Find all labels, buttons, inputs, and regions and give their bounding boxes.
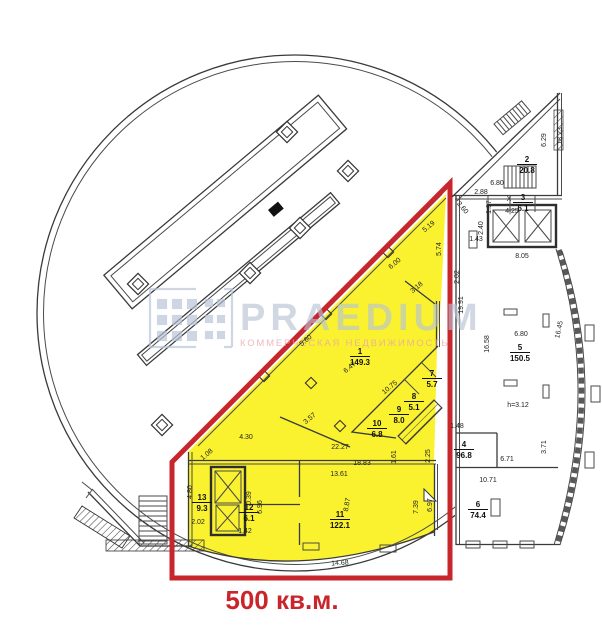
svg-text:1: 1 xyxy=(358,347,363,356)
svg-text:8: 8 xyxy=(412,392,417,401)
svg-text:20.8: 20.8 xyxy=(519,166,535,175)
svg-text:6: 6 xyxy=(476,500,481,509)
dimension-label: 18.83 xyxy=(353,460,371,467)
svg-text:2: 2 xyxy=(525,155,530,164)
dimension-label: 6.96 xyxy=(257,500,264,514)
dimension-label: 3.71 xyxy=(541,440,548,454)
dimension-label: X xyxy=(507,196,512,203)
dimension-label: 1.42 xyxy=(238,528,252,535)
dimension-label: 1.43 xyxy=(469,236,483,243)
dimension-label: 5.74 xyxy=(436,242,443,256)
svg-text:3: 3 xyxy=(521,193,526,202)
dimension-label: 6.80 xyxy=(490,180,504,187)
dimension-label: 4.80 xyxy=(187,485,194,499)
dimension-label: 2.40 xyxy=(478,221,485,235)
svg-text:74.4: 74.4 xyxy=(470,511,486,520)
svg-text:6.8: 6.8 xyxy=(371,430,383,439)
svg-text:5.1: 5.1 xyxy=(408,403,420,412)
dimension-label: 1.61 xyxy=(391,450,398,464)
dimension-label: 10.71 xyxy=(479,477,497,484)
svg-text:8.0: 8.0 xyxy=(393,416,405,425)
dimension-label: 2.02 xyxy=(454,270,461,284)
dimension-label: 16.58 xyxy=(484,335,491,353)
svg-text:96.8: 96.8 xyxy=(456,451,472,460)
dimension-label: 0.39 xyxy=(246,491,253,505)
svg-text:10: 10 xyxy=(373,419,382,428)
dimension-label: 8.05 xyxy=(515,253,529,260)
dimension-label: 13.61 xyxy=(330,471,348,478)
dimension-label: 18.23 xyxy=(557,127,564,145)
svg-text:9.3: 9.3 xyxy=(196,504,208,513)
svg-text:122.1: 122.1 xyxy=(330,521,351,530)
dimension-label: 2.25 xyxy=(425,449,432,463)
area-caption: 500 кв.м. xyxy=(225,585,338,615)
watermark-subtitle: КОММЕРЧЕСКАЯ НЕДВИЖИМОСТЬ xyxy=(240,338,450,349)
svg-text:5: 5 xyxy=(518,343,523,352)
dimension-label: h=3.12 xyxy=(507,402,529,409)
dimension-label: 14.68 xyxy=(331,560,349,568)
dimension-label: 6.29 xyxy=(541,133,548,147)
watermark-brand: PRAEDIUM xyxy=(240,297,483,339)
dimension-label: 6.80 xyxy=(514,331,528,338)
svg-text:13: 13 xyxy=(198,493,207,502)
entrance-steps xyxy=(106,540,204,551)
dimension-label: 7.39 xyxy=(413,500,420,514)
dimension-label: 22.27 xyxy=(331,444,349,451)
svg-text:150.5: 150.5 xyxy=(510,354,531,363)
floor-plan-page: PRAEDIUM КОММЕРЧЕСКАЯ НЕДВИЖИМОСТЬ 1149.… xyxy=(0,0,602,639)
dimension-label: 1.97 xyxy=(486,200,493,214)
dimension-label: 6.97 xyxy=(427,498,434,512)
dimension-label: 6.71 xyxy=(500,456,514,463)
svg-text:6.1: 6.1 xyxy=(517,204,529,213)
dimension-label: 2.02 xyxy=(191,519,205,526)
dimension-label: 19.91 xyxy=(458,296,465,314)
dimension-label: 2.88 xyxy=(474,189,488,196)
dimension-label: 1.48 xyxy=(450,423,464,430)
floor-plan-drawing: PRAEDIUM КОММЕРЧЕСКАЯ НЕДВИЖИМОСТЬ 1149.… xyxy=(0,0,602,639)
dimension-label: 4|25 xyxy=(505,208,519,215)
svg-text:6.1: 6.1 xyxy=(243,514,255,523)
svg-text:7: 7 xyxy=(430,369,435,378)
svg-text:9: 9 xyxy=(397,405,402,414)
dimension-label: 4.30 xyxy=(239,434,253,441)
svg-text:4: 4 xyxy=(462,440,467,449)
svg-text:5.7: 5.7 xyxy=(426,380,438,389)
